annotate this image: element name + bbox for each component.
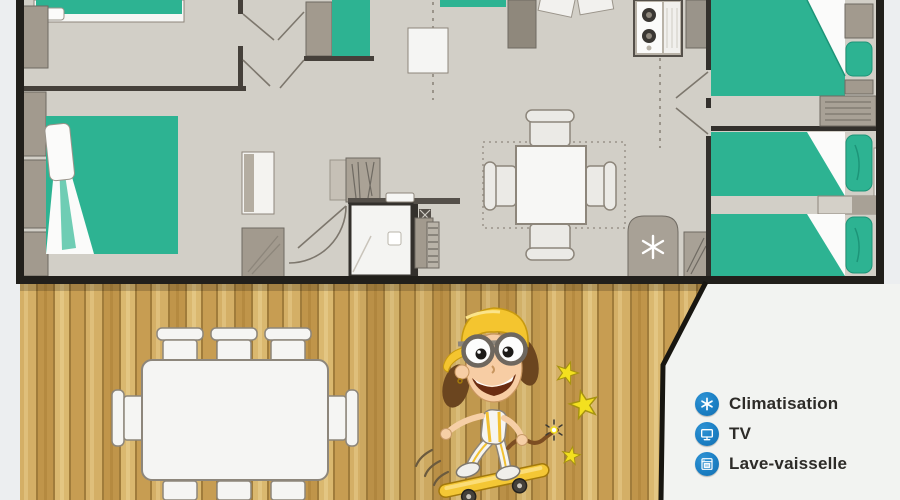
shower-drain xyxy=(388,232,401,245)
wall xyxy=(706,0,711,70)
nightstand-top xyxy=(852,196,876,214)
bunk-nook xyxy=(304,0,374,61)
screenshot-canvas: Climatisation TV Lave-vaisselle xyxy=(0,0,900,500)
shower xyxy=(350,204,412,276)
legend-label: Climatisation xyxy=(729,394,838,414)
bathroom-cabinet xyxy=(346,158,380,202)
washbasin xyxy=(386,193,414,202)
dresser xyxy=(820,96,876,126)
bed xyxy=(711,0,811,96)
ear xyxy=(455,365,469,379)
single-bed xyxy=(711,214,807,276)
legend-label: Lave-vaisselle xyxy=(729,454,847,474)
closet-door xyxy=(244,154,254,212)
eye-glint xyxy=(477,350,481,354)
wardrobe xyxy=(306,2,332,56)
corner-unit xyxy=(686,0,708,48)
bench-seat xyxy=(440,0,506,7)
wardrobe xyxy=(22,6,48,68)
wall xyxy=(238,46,243,91)
wall xyxy=(706,136,711,276)
bunk-bed xyxy=(332,0,370,56)
dishwasher-icon xyxy=(695,452,719,476)
stove-dial xyxy=(647,46,652,51)
headboard-shelf xyxy=(845,80,873,94)
amenities-legend: Climatisation TV Lave-vaisselle xyxy=(695,392,847,476)
eye xyxy=(503,347,514,358)
legend-item-tv: TV xyxy=(695,422,847,446)
burner-cap xyxy=(646,33,652,39)
tv-icon xyxy=(695,422,719,446)
wall xyxy=(706,98,711,108)
burner-cap xyxy=(646,12,652,18)
pillow xyxy=(44,123,75,181)
wall xyxy=(238,0,243,14)
headboard-shelf xyxy=(845,4,873,38)
legend-item-climatisation: Climatisation xyxy=(695,392,847,416)
outdoor-table xyxy=(142,360,328,480)
eye xyxy=(476,349,487,360)
towel-rail xyxy=(427,222,439,268)
legend-label: TV xyxy=(729,424,751,444)
pillow xyxy=(846,42,872,76)
side-table xyxy=(408,28,448,73)
eye-glint xyxy=(504,348,508,352)
wall xyxy=(24,86,246,91)
floor-plan xyxy=(16,0,884,284)
wall xyxy=(711,126,878,131)
left-hand xyxy=(441,429,452,440)
single-bed xyxy=(711,132,807,196)
tall-unit xyxy=(508,0,536,48)
dining-table xyxy=(516,146,586,224)
air-conditioning-icon xyxy=(695,392,719,416)
right-hand xyxy=(517,435,528,446)
legend-item-lave-vaisselle: Lave-vaisselle xyxy=(695,452,847,476)
wall xyxy=(304,56,374,61)
